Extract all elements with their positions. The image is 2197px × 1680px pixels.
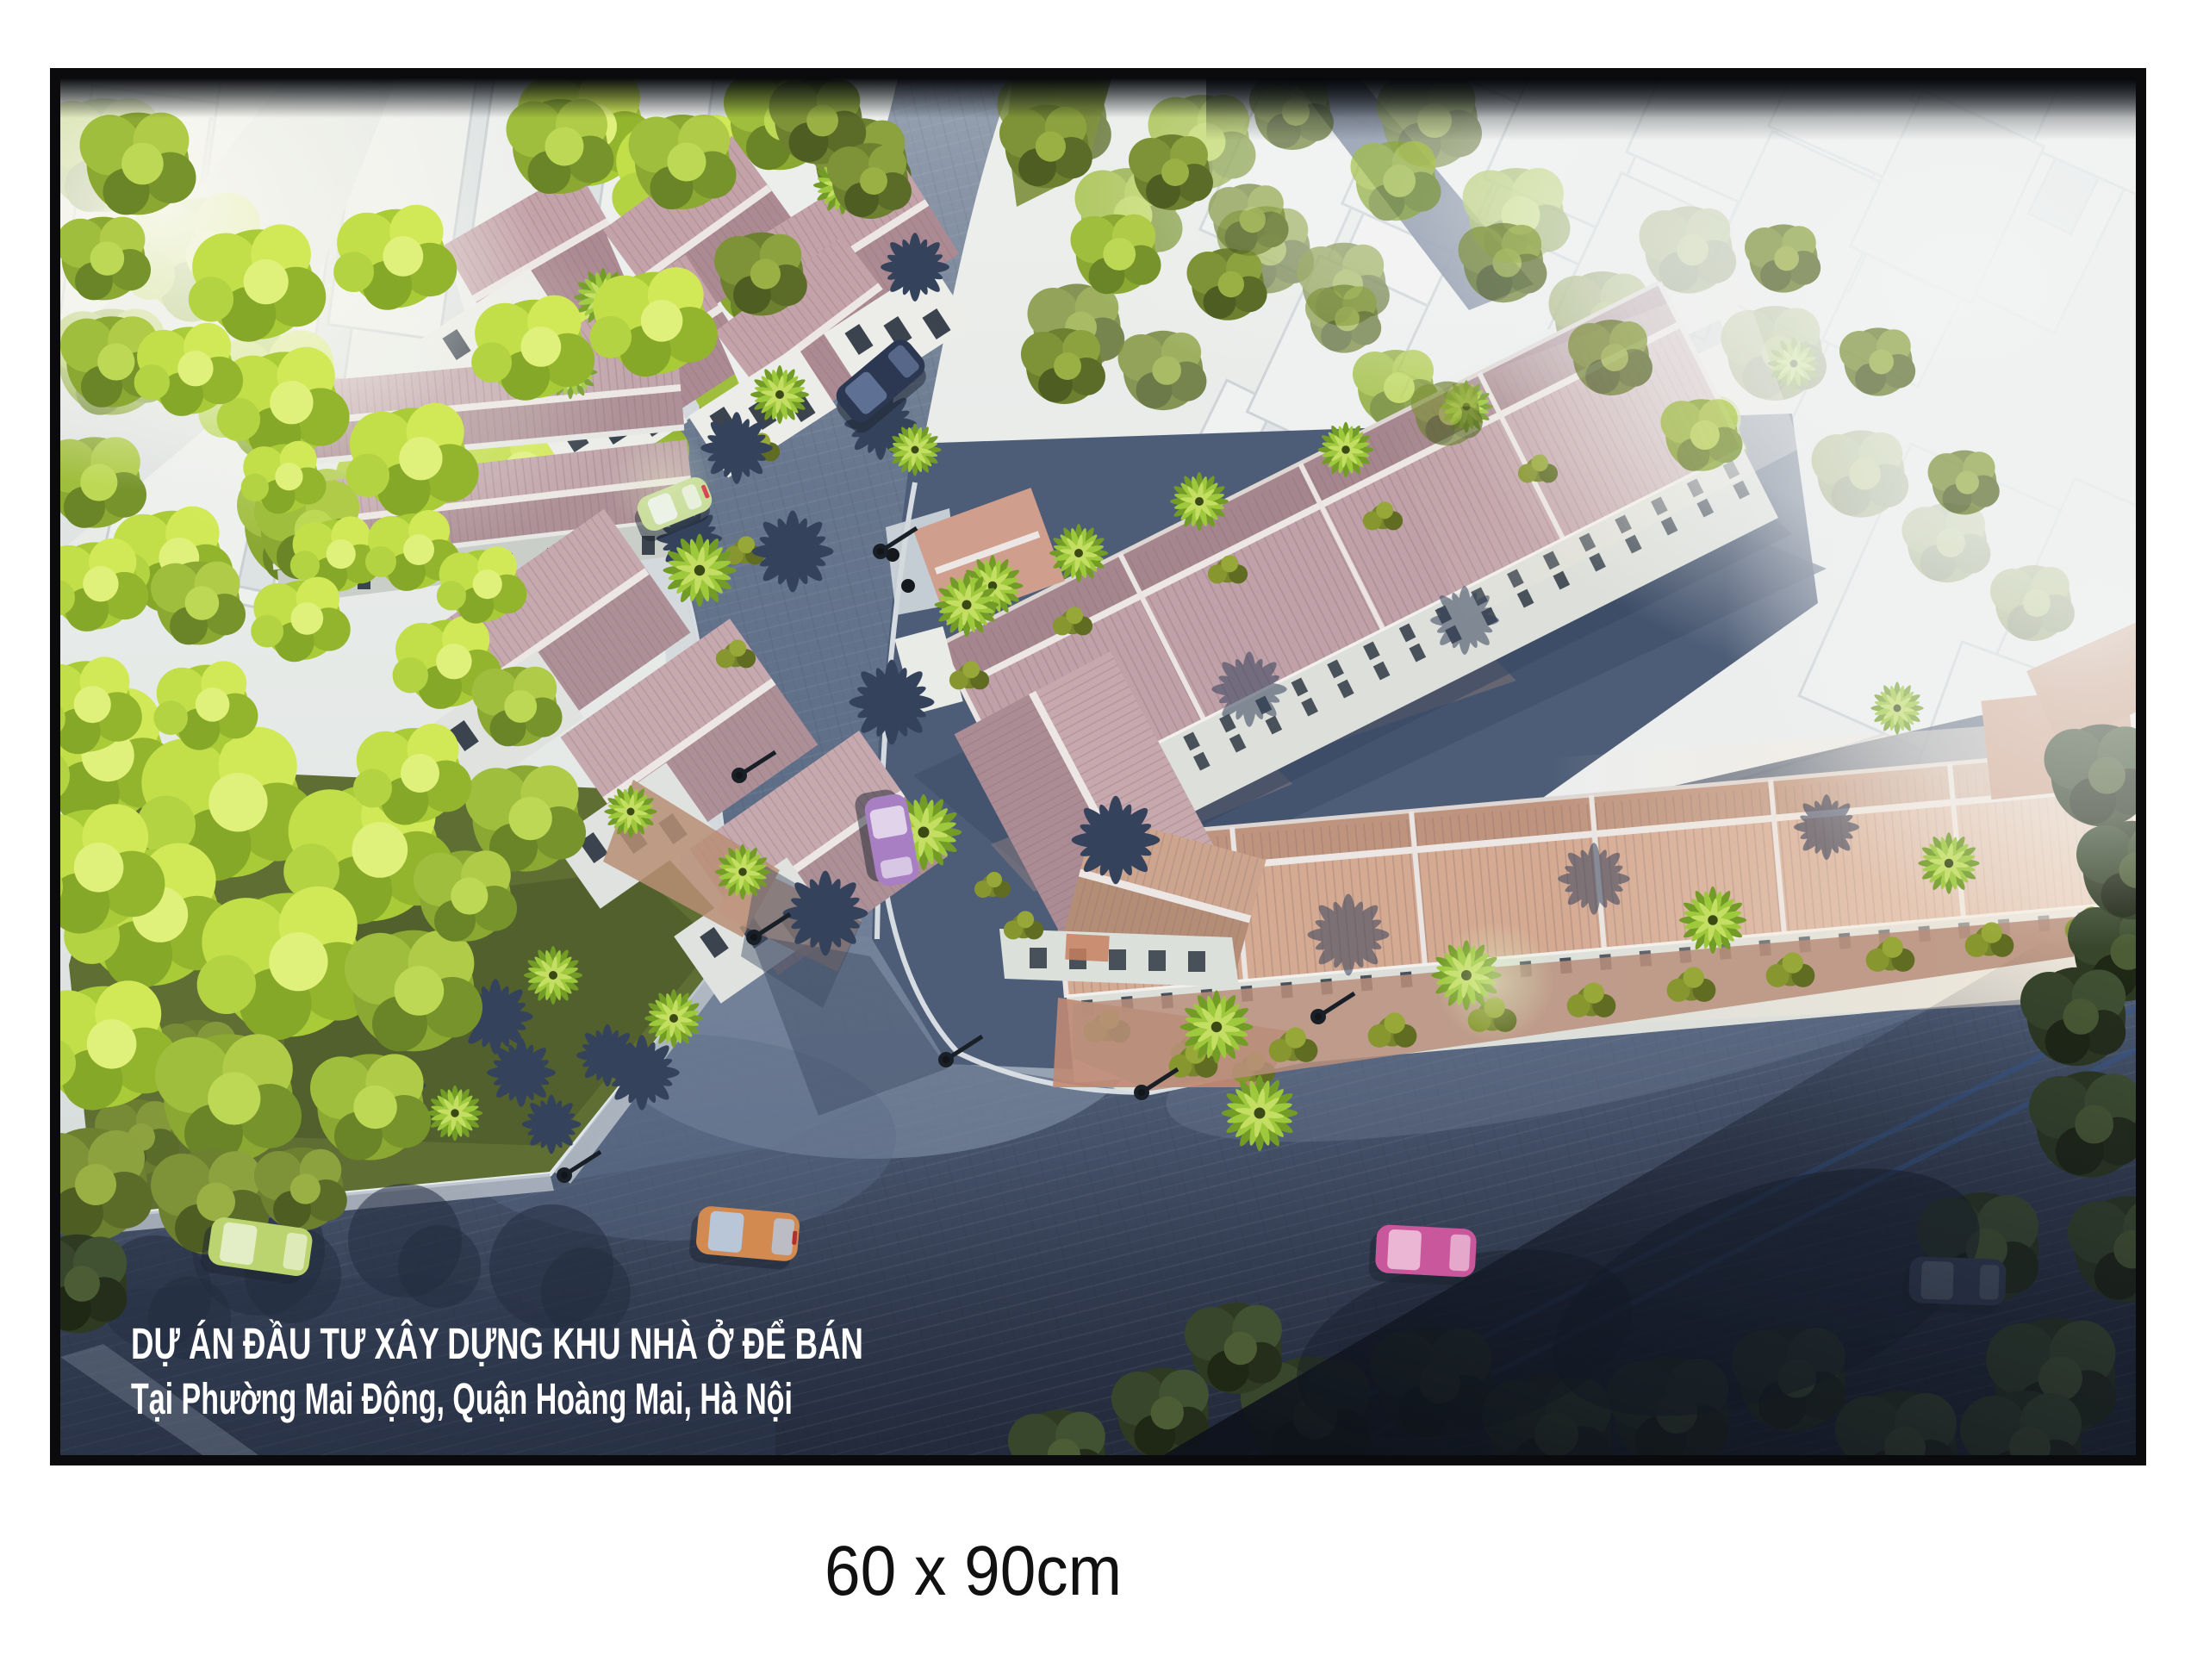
svg-text:60 x 90cm: 60 x 90cm [825, 1532, 1122, 1610]
svg-text:Tại Phường Mai Động, Quận Hoàn: Tại Phường Mai Động, Quận Hoàng Mai, Hà … [131, 1374, 793, 1423]
svg-text:DỰ ÁN ĐẦU TƯ XÂY DỰNG KHU NHÀ: DỰ ÁN ĐẦU TƯ XÂY DỰNG KHU NHÀ Ở ĐỂ BÁN [131, 1318, 863, 1368]
